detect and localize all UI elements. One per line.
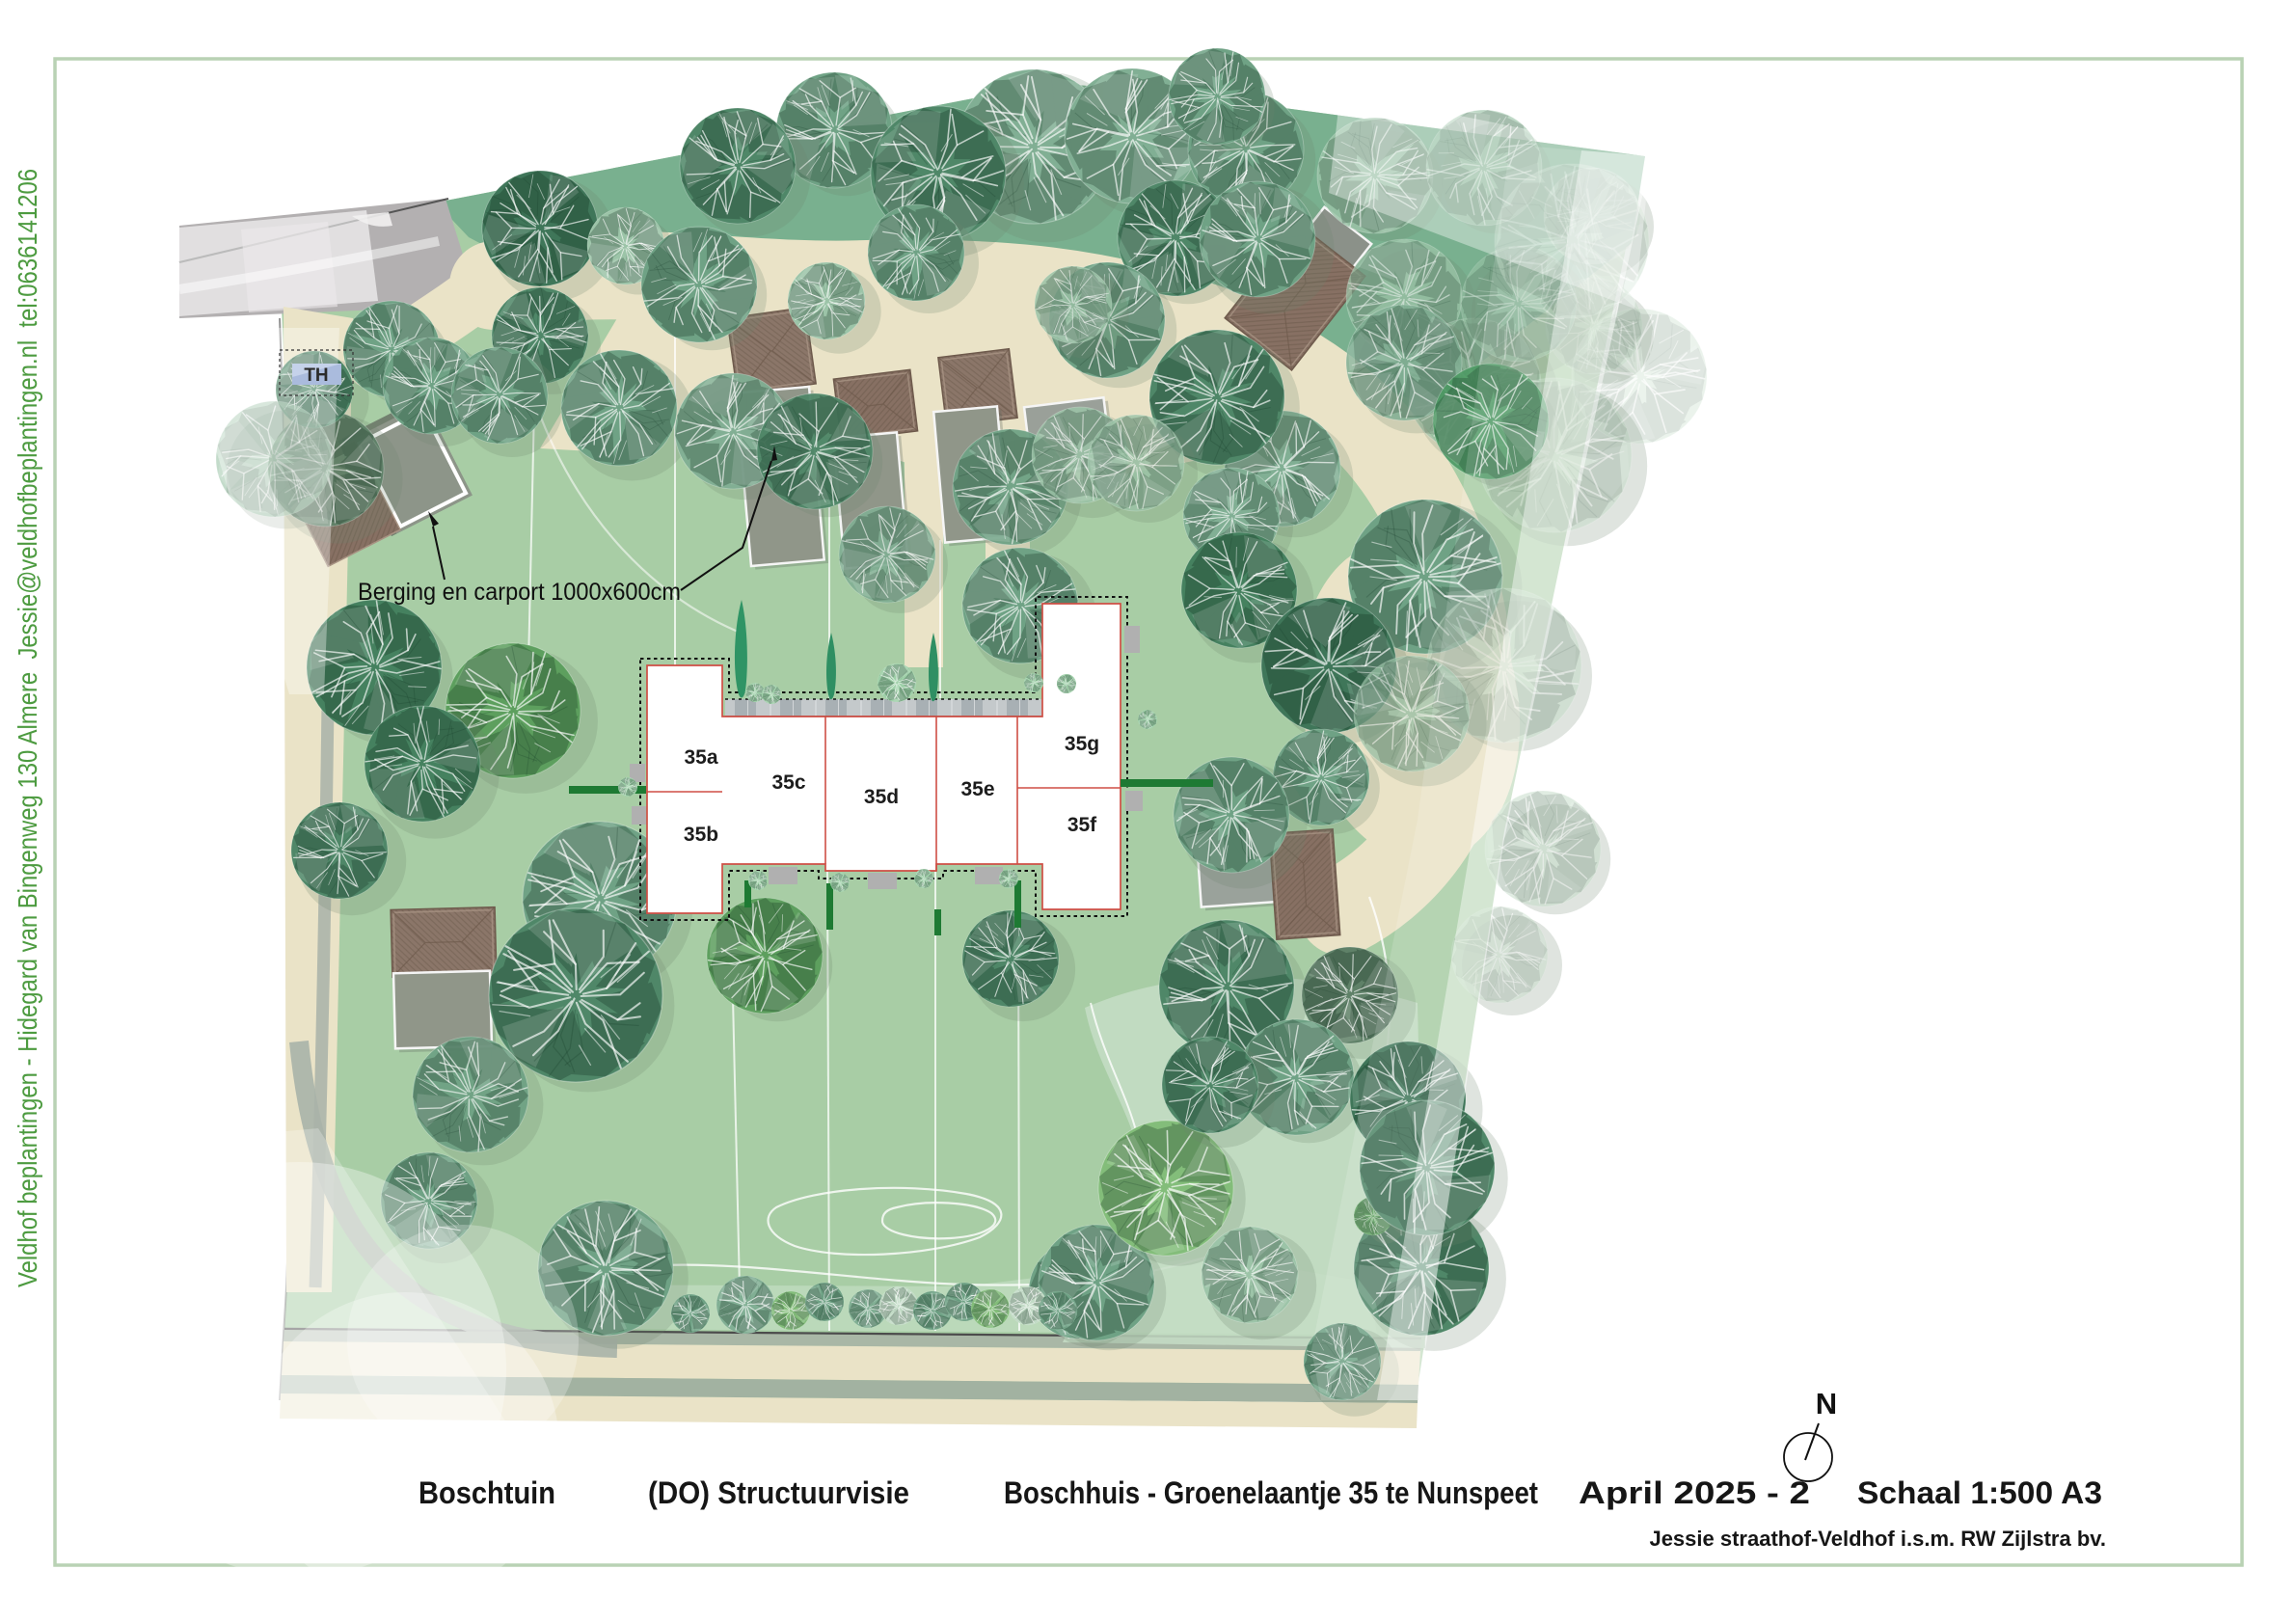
svg-text:(DO) Structuurvisie: (DO) Structuurvisie bbox=[648, 1475, 909, 1510]
svg-text:TH: TH bbox=[304, 365, 328, 386]
svg-text:35a: 35a bbox=[684, 746, 717, 769]
svg-text:35b: 35b bbox=[684, 824, 718, 846]
svg-text:35g: 35g bbox=[1065, 733, 1099, 755]
svg-text:N: N bbox=[1816, 1387, 1837, 1420]
svg-text:Veldhof beplantingen - Hidegar: Veldhof beplantingen - Hidegard van Bing… bbox=[13, 169, 42, 1287]
svg-text:Schaal 1:500 A3: Schaal 1:500 A3 bbox=[1857, 1475, 2102, 1510]
svg-text:35d: 35d bbox=[864, 786, 899, 808]
svg-text:35f: 35f bbox=[1067, 814, 1097, 836]
svg-text:Berging en carport 1000x600cm: Berging en carport 1000x600cm bbox=[358, 579, 681, 606]
svg-text:Boschhuis - Groenelaantje 35 t: Boschhuis - Groenelaantje 35 te Nunspeet bbox=[1004, 1475, 1538, 1510]
svg-text:35c: 35c bbox=[771, 771, 805, 794]
svg-text:35e: 35e bbox=[960, 778, 994, 800]
svg-text:Jessie straathof-Veldhof i.s.m: Jessie straathof-Veldhof i.s.m. RW Zijls… bbox=[1649, 1527, 2106, 1551]
svg-text:April 2025 - 2: April 2025 - 2 bbox=[1579, 1475, 1810, 1510]
svg-text:Boschtuin: Boschtuin bbox=[419, 1475, 555, 1510]
